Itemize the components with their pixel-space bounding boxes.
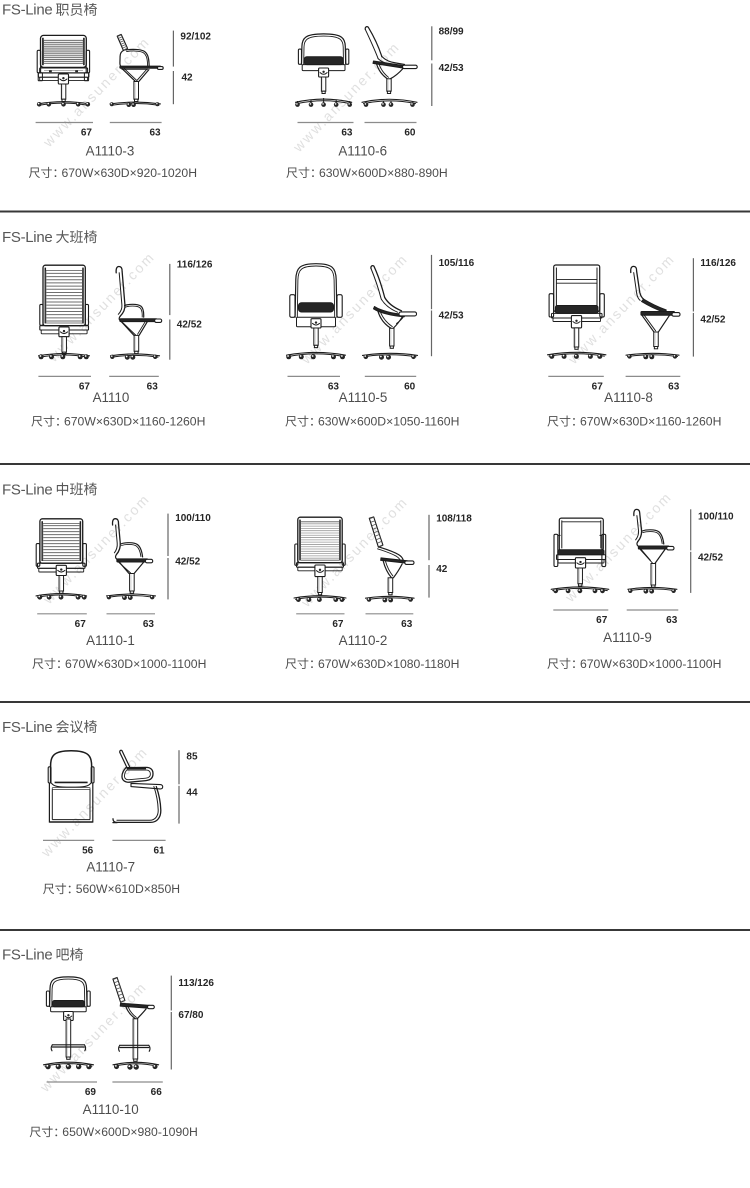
- svg-text:630W×600D×1050-1160H: 630W×600D×1050-1160H: [318, 415, 459, 429]
- svg-text:44: 44: [186, 787, 198, 798]
- svg-text:FS-Line: FS-Line: [2, 229, 52, 246]
- svg-text:42/52: 42/52: [700, 314, 725, 325]
- svg-text:42/53: 42/53: [439, 63, 464, 74]
- svg-text:42/53: 42/53: [439, 310, 464, 321]
- svg-text:670W×630D×920-1020H: 670W×630D×920-1020H: [62, 166, 198, 180]
- svg-text:A1110-8: A1110-8: [604, 390, 653, 405]
- svg-text:88/99: 88/99: [439, 27, 464, 38]
- svg-text:67: 67: [596, 615, 608, 626]
- svg-text:63: 63: [143, 619, 155, 630]
- svg-text:670W×630D×1000-1100H: 670W×630D×1000-1100H: [580, 657, 721, 671]
- svg-text:670W×630D×1160-1260H: 670W×630D×1160-1260H: [580, 415, 721, 429]
- svg-text:63: 63: [147, 382, 159, 393]
- svg-text:A1110-3: A1110-3: [86, 143, 135, 158]
- svg-text:63: 63: [666, 615, 678, 626]
- svg-text:67: 67: [592, 382, 604, 393]
- svg-text:650W×600D×980-1090H: 650W×600D×980-1090H: [62, 1125, 198, 1139]
- svg-text:630W×600D×880-890H: 630W×600D×880-890H: [319, 166, 448, 180]
- svg-text:A1110: A1110: [93, 390, 130, 405]
- svg-text:116/126: 116/126: [177, 259, 213, 270]
- svg-text:92/102: 92/102: [180, 32, 211, 43]
- svg-text:A1110-6: A1110-6: [338, 143, 387, 158]
- svg-text:A1110-1: A1110-1: [86, 633, 135, 648]
- svg-text:A1110-9: A1110-9: [603, 630, 652, 645]
- svg-text:56: 56: [82, 846, 94, 857]
- svg-text:FS-Line: FS-Line: [2, 947, 52, 964]
- svg-text:63: 63: [149, 128, 161, 139]
- svg-text:61: 61: [153, 846, 165, 857]
- svg-text:42/52: 42/52: [177, 319, 202, 330]
- svg-text:A1110-5: A1110-5: [339, 390, 388, 405]
- svg-text:108/118: 108/118: [436, 514, 472, 525]
- svg-text:670W×630D×1080-1180H: 670W×630D×1080-1180H: [318, 657, 459, 671]
- svg-text:FS-Line: FS-Line: [2, 481, 52, 498]
- svg-text:A1110-10: A1110-10: [83, 1102, 139, 1117]
- svg-text:100/110: 100/110: [175, 513, 211, 524]
- svg-text:100/110: 100/110: [698, 511, 734, 522]
- svg-text:FS-Line: FS-Line: [2, 719, 52, 736]
- svg-text:67/80: 67/80: [178, 1010, 203, 1021]
- svg-text:67: 67: [81, 128, 93, 139]
- svg-text:113/126: 113/126: [178, 978, 214, 989]
- svg-text:560W×610D×850H: 560W×610D×850H: [76, 882, 180, 896]
- svg-text:85: 85: [186, 752, 198, 763]
- svg-text:69: 69: [85, 1087, 97, 1098]
- svg-text:67: 67: [75, 619, 87, 630]
- svg-text:60: 60: [404, 128, 416, 139]
- svg-text:670W×630D×1000-1100H: 670W×630D×1000-1100H: [65, 657, 206, 671]
- svg-text:60: 60: [404, 382, 416, 393]
- svg-text:67: 67: [332, 619, 344, 630]
- svg-text:116/126: 116/126: [700, 258, 736, 269]
- svg-text:42/52: 42/52: [698, 553, 723, 564]
- svg-text:42/52: 42/52: [175, 557, 200, 568]
- svg-text:670W×630D×1160-1260H: 670W×630D×1160-1260H: [64, 415, 205, 429]
- svg-text:63: 63: [401, 619, 413, 630]
- svg-text:42: 42: [182, 72, 194, 83]
- svg-text:67: 67: [79, 382, 91, 393]
- svg-text:63: 63: [668, 382, 680, 393]
- svg-text:A1110-2: A1110-2: [339, 633, 388, 648]
- svg-text:105/116: 105/116: [439, 258, 475, 269]
- svg-text:63: 63: [341, 128, 353, 139]
- svg-text:66: 66: [151, 1087, 163, 1098]
- svg-text:FS-Line: FS-Line: [2, 2, 52, 19]
- svg-text:A1110-7: A1110-7: [86, 860, 135, 875]
- svg-text:42: 42: [436, 564, 448, 575]
